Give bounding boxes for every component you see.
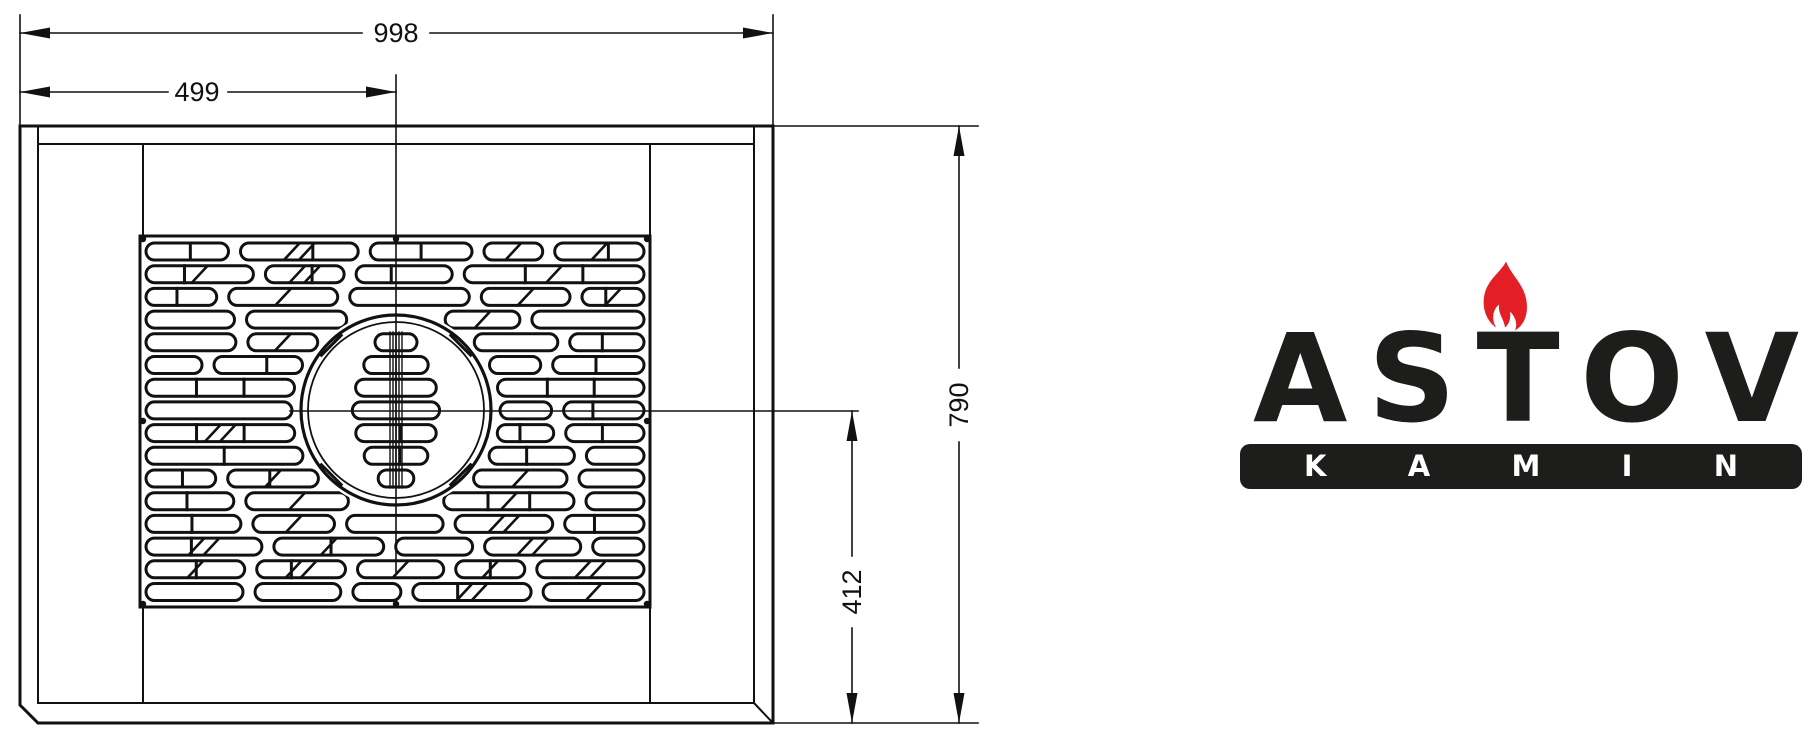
arrowhead xyxy=(366,87,396,98)
arrowhead xyxy=(20,87,50,98)
dimension-499-label: 499 xyxy=(174,77,219,107)
arrowhead xyxy=(847,411,858,441)
arrowhead xyxy=(743,28,773,39)
arrowhead xyxy=(847,693,858,723)
arrowhead xyxy=(954,693,965,723)
page: 998 499 790 412 A S T O V K A M I N xyxy=(0,0,1816,753)
technical-drawing: 998 499 790 412 xyxy=(0,0,1816,753)
arrowhead xyxy=(20,28,50,39)
dimension-790-label: 790 xyxy=(944,382,974,427)
dimension-412-label: 412 xyxy=(837,569,867,614)
arrowhead xyxy=(954,126,965,156)
dimension-998-label: 998 xyxy=(373,18,418,48)
